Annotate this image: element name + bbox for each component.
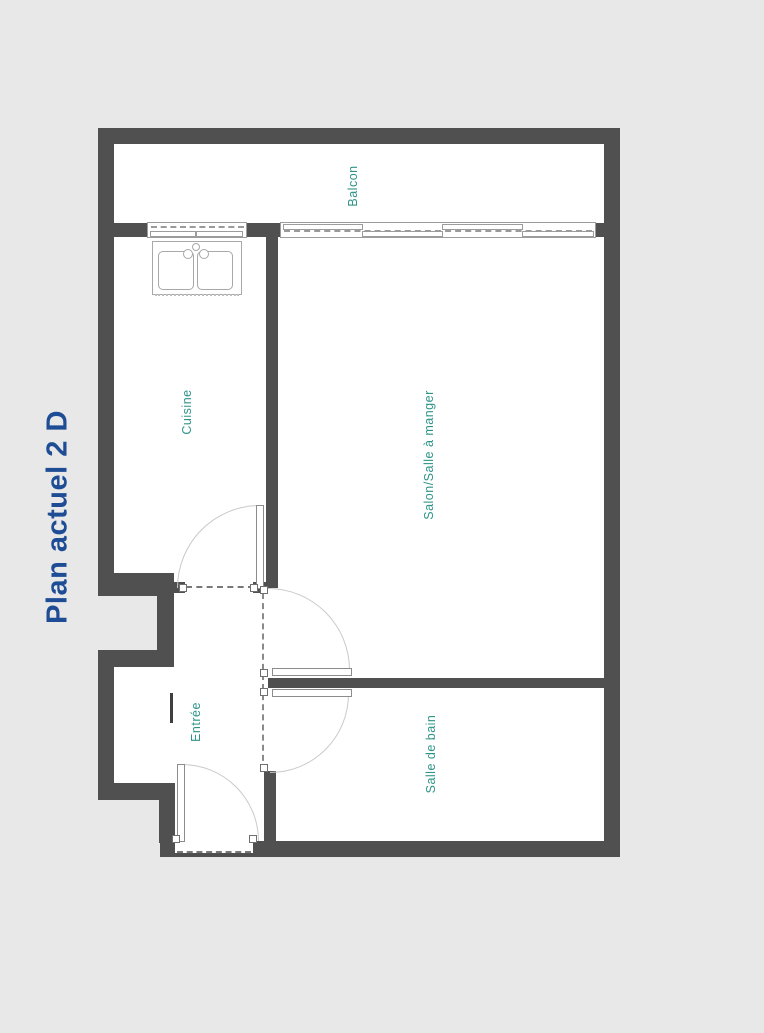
kitchen-sink-counter xyxy=(152,241,242,295)
dashed-line-stop-top xyxy=(260,586,268,594)
wall-kitchen-salon xyxy=(266,237,278,588)
wall-notch-right xyxy=(157,596,174,654)
room-label-balcon: Balcon xyxy=(346,165,360,206)
wall-left-lower xyxy=(98,667,114,787)
salon-window-pane-3 xyxy=(442,224,523,230)
room-label-salon: Salon/Salle à manger xyxy=(422,390,436,520)
salon-door-stop xyxy=(260,669,268,677)
exterior-notch-bottom-left xyxy=(114,798,160,841)
wall-right xyxy=(604,128,620,857)
salon-window-pane-1 xyxy=(283,224,363,230)
kitchen-door-threshold xyxy=(186,586,254,588)
room-label-cuisine: Cuisine xyxy=(180,389,194,434)
salon-window-pane-2 xyxy=(362,231,443,237)
wall-salon-bath xyxy=(268,678,604,688)
bath-door-leaf xyxy=(272,689,352,697)
room-label-entree: Entrée xyxy=(189,702,203,742)
entree-salon-dashed-line xyxy=(262,593,264,771)
kitchen-window-pane-left xyxy=(150,231,196,237)
exterior-notch-left xyxy=(114,596,157,652)
kitchen-door-stop-right xyxy=(250,584,258,592)
wall-kitchen-entree xyxy=(113,582,185,593)
bath-door-stop-end xyxy=(260,764,268,772)
closet-divider-line xyxy=(170,693,173,723)
kitchen-door-leaf xyxy=(256,505,264,589)
floor-plan: Balcon Cuisine Salon/Salle à manger Entr… xyxy=(0,0,764,1033)
bath-door-stop-hinge xyxy=(260,688,268,696)
kitchen-window xyxy=(147,222,247,238)
salon-window-band xyxy=(280,222,596,238)
sink-spout xyxy=(192,243,200,251)
room-label-salle-de-bain: Salle de bain xyxy=(424,715,438,794)
entry-door-stop-right xyxy=(249,835,257,843)
wall-bath-entree-lower xyxy=(264,771,276,841)
entry-door-leaf xyxy=(177,764,185,842)
floor-plan-page: { "title": "Plan actuel 2 D", "rooms": {… xyxy=(0,0,764,1033)
sink-tap-left xyxy=(183,249,193,259)
kitchen-window-pane-right xyxy=(196,231,243,237)
kitchen-window-dash xyxy=(151,226,244,228)
kitchen-door-stop-left xyxy=(179,584,187,592)
salon-window-pane-4 xyxy=(522,231,594,237)
sink-edge-dots xyxy=(155,294,239,296)
wall-left-upper xyxy=(98,128,114,596)
wall-top xyxy=(98,128,620,144)
entry-door-threshold xyxy=(177,851,251,853)
sink-tap-right xyxy=(199,249,209,259)
salon-door-leaf xyxy=(272,668,352,676)
entry-door-stop-left xyxy=(172,835,180,843)
wall-notch-bottom xyxy=(98,650,174,667)
